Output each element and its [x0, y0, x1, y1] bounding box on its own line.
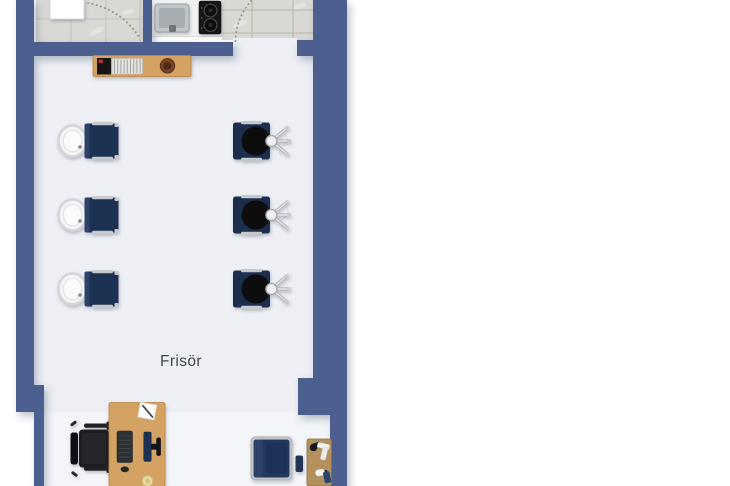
wash-station-3	[59, 270, 119, 308]
stove-control	[201, 27, 203, 29]
magazine-rack-detail	[99, 60, 104, 64]
wall-left-lower	[34, 412, 44, 486]
wall-top-horizontal	[16, 42, 233, 56]
bathroom-door-leaf	[50, 0, 84, 19]
kitchen-opening-floor	[233, 38, 297, 57]
wash-station-2	[59, 196, 119, 234]
office-chair-armrest	[84, 424, 110, 428]
floor-plan-svg: Frisör	[0, 0, 730, 486]
waiting-armchair	[252, 438, 292, 480]
kitchen-fixtures	[155, 1, 221, 34]
stove-burner-center	[209, 23, 213, 27]
monitor	[144, 432, 151, 461]
stove-control	[201, 7, 203, 9]
bowl-on-desk-inner	[145, 478, 150, 483]
wall-left	[16, 0, 34, 385]
wall-opening-stub	[297, 40, 313, 56]
stove-burner-center	[209, 9, 213, 13]
side-table	[307, 439, 332, 486]
wall-bathroom-kitchen-divider	[143, 0, 152, 42]
armchair-side-piece	[296, 456, 304, 473]
stove-control	[201, 17, 203, 19]
office-chair-cushion	[82, 433, 106, 464]
mouse	[121, 466, 129, 472]
table-lamp	[310, 444, 318, 452]
wall-right-lower	[330, 415, 347, 486]
armchair-seat-cushion	[266, 443, 287, 474]
reception-desk	[109, 402, 165, 486]
wall-right	[313, 0, 347, 378]
armchair-back-cushion	[254, 440, 264, 478]
room-label: Frisör	[160, 353, 202, 370]
monitor-stand	[156, 438, 161, 456]
floor-plan-canvas: Frisör	[0, 0, 730, 486]
office-chair-backrest	[71, 433, 79, 465]
wash-station-1	[59, 122, 119, 160]
sink-faucet	[169, 25, 176, 32]
wall-left-step	[16, 385, 44, 412]
magazine-sideboard	[93, 56, 191, 77]
notepad	[138, 402, 157, 420]
wall-right-protrusion	[298, 378, 347, 415]
decor-bowl-inner	[163, 62, 171, 70]
